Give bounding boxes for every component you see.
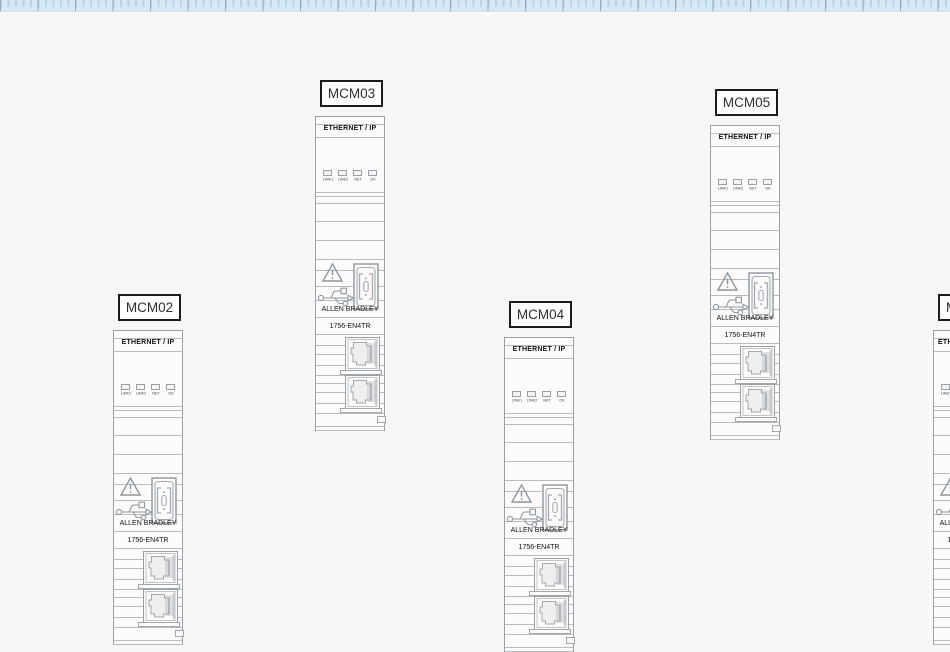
divider-line bbox=[316, 203, 384, 204]
module-tag-label[interactable]: M bbox=[938, 294, 950, 321]
led-label-link2: LINK2 bbox=[526, 399, 536, 403]
jack-base bbox=[735, 417, 777, 422]
ethernet-jack-icon bbox=[345, 375, 380, 409]
divider-line bbox=[934, 606, 950, 607]
divider-line bbox=[934, 406, 950, 407]
ethernet-jack-icon bbox=[534, 596, 569, 630]
divider-line bbox=[316, 137, 384, 138]
divider-line bbox=[316, 259, 384, 260]
divider-line bbox=[316, 426, 384, 427]
module-body: ETHERNET / IP LINK1 LINK2 NET OK bbox=[504, 337, 574, 652]
led-label-link1: LINK1 bbox=[940, 392, 950, 396]
divider-line bbox=[934, 410, 950, 411]
divider-line bbox=[711, 146, 779, 147]
divider-line bbox=[505, 538, 573, 539]
divider-line bbox=[934, 589, 950, 590]
led-label-link1: LINK1 bbox=[511, 399, 521, 403]
divider-line bbox=[505, 424, 573, 425]
led-label-net: NET bbox=[749, 187, 756, 191]
divider-line bbox=[934, 617, 950, 618]
bottom-notch bbox=[175, 630, 184, 637]
divider-line bbox=[114, 627, 182, 628]
divider-line bbox=[114, 473, 182, 474]
divider-line bbox=[711, 205, 779, 206]
divider-line bbox=[934, 351, 950, 352]
module-tag-label[interactable]: MCM02 bbox=[118, 294, 181, 321]
model-label: 1756-EN4TR bbox=[934, 533, 950, 547]
led-label-link2: LINK2 bbox=[732, 187, 742, 191]
module-body: ETHERNET / IP LINK1 LINK2 NET OK bbox=[710, 125, 780, 440]
horizontal-ruler bbox=[0, 0, 950, 12]
module-tag-text: MCM02 bbox=[126, 300, 173, 315]
divider-line bbox=[505, 555, 573, 556]
divider-line bbox=[934, 417, 950, 418]
warning-triangle-icon bbox=[940, 476, 950, 497]
divider-line bbox=[316, 192, 384, 193]
divider-line bbox=[934, 531, 950, 532]
divider-line bbox=[114, 410, 182, 411]
led-link1 bbox=[718, 179, 727, 185]
bottom-notch bbox=[772, 425, 781, 432]
model-label: 1756-EN4TR bbox=[316, 319, 384, 333]
ethernet-jack-icon bbox=[345, 337, 380, 371]
led-label-ok: OK bbox=[168, 392, 173, 396]
led-label-ok: OK bbox=[559, 399, 564, 403]
divider-line bbox=[505, 417, 573, 418]
module-body: ETHERNET / IP LINK1 LINK2 NET OK bbox=[933, 330, 950, 645]
ethernet-ip-label: ETHERNET / IP bbox=[114, 339, 182, 351]
divider-line bbox=[934, 644, 950, 645]
module-tag-text: M bbox=[946, 300, 950, 315]
divider-line bbox=[711, 326, 779, 327]
divider-line bbox=[114, 454, 182, 455]
warning-triangle-icon bbox=[120, 476, 141, 497]
ethernet-jack-icon bbox=[740, 384, 775, 418]
divider-line bbox=[505, 413, 573, 414]
jack-base bbox=[138, 622, 180, 627]
ethernet-ip-label: ETHERNET / IP bbox=[316, 125, 384, 137]
divider-line bbox=[711, 201, 779, 202]
divider-line bbox=[934, 579, 950, 580]
model-label: 1756-EN4TR bbox=[505, 540, 573, 554]
led-link2 bbox=[527, 391, 536, 397]
divider-line bbox=[711, 343, 779, 344]
divider-line bbox=[505, 480, 573, 481]
ethernet-jack-icon bbox=[143, 589, 178, 623]
module-tag-text: MCM05 bbox=[723, 95, 770, 110]
divider-line bbox=[505, 358, 573, 359]
divider-line bbox=[316, 221, 384, 222]
led-ok bbox=[763, 179, 772, 185]
module-tag-text: MCM04 bbox=[517, 307, 564, 322]
divider-line bbox=[934, 454, 950, 455]
led-ok bbox=[557, 391, 566, 397]
ethernet-jack-icon bbox=[534, 558, 569, 592]
brand-label: ALLEN BRADLEY bbox=[316, 302, 384, 317]
divider-line bbox=[114, 640, 182, 641]
divider-line bbox=[934, 559, 950, 560]
divider-line bbox=[114, 435, 182, 436]
divider-line bbox=[934, 627, 950, 628]
divider-line bbox=[316, 240, 384, 241]
divider-line bbox=[711, 268, 779, 269]
divider-line bbox=[316, 317, 384, 318]
ethernet-ip-label: ETHERNET / IP bbox=[711, 134, 779, 146]
divider-line bbox=[316, 430, 384, 431]
divider-line bbox=[505, 461, 573, 462]
ethernet-jack-icon bbox=[143, 551, 178, 585]
module-body: ETHERNET / IP LINK1 LINK2 NET OK bbox=[315, 116, 385, 431]
led-link2 bbox=[136, 384, 145, 390]
led-net bbox=[353, 170, 362, 176]
divider-line bbox=[934, 548, 950, 549]
model-label: 1756-EN4TR bbox=[114, 533, 182, 547]
led-net bbox=[748, 179, 757, 185]
divider-line bbox=[934, 473, 950, 474]
led-label-link1: LINK1 bbox=[717, 187, 727, 191]
divider-line bbox=[114, 406, 182, 407]
led-ok bbox=[166, 384, 175, 390]
ethernet-ip-label: ETHERNET / IP bbox=[934, 339, 950, 351]
model-label: 1756-EN4TR bbox=[711, 328, 779, 342]
brand-label: ALLEN BRADLEY bbox=[934, 516, 950, 531]
led-net bbox=[151, 384, 160, 390]
led-label-ok: OK bbox=[370, 178, 375, 182]
led-link2 bbox=[338, 170, 347, 176]
led-link1 bbox=[121, 384, 130, 390]
divider-line bbox=[505, 647, 573, 648]
led-link1 bbox=[941, 384, 950, 390]
led-label-ok: OK bbox=[765, 187, 770, 191]
divider-line bbox=[711, 212, 779, 213]
divider-line bbox=[114, 417, 182, 418]
divider-line bbox=[934, 597, 950, 598]
led-link2 bbox=[733, 179, 742, 185]
led-link1 bbox=[512, 391, 521, 397]
led-label-link1: LINK1 bbox=[322, 178, 332, 182]
led-label-net: NET bbox=[152, 392, 159, 396]
design-canvas[interactable]: MCM02 ETHERNET / IP bbox=[0, 12, 950, 437]
warning-triangle-icon bbox=[717, 271, 738, 292]
led-label-link1: LINK1 bbox=[120, 392, 130, 396]
divider-line bbox=[316, 413, 384, 414]
divider-line bbox=[711, 422, 779, 423]
module-tag-label[interactable]: MCM05 bbox=[715, 89, 778, 116]
module-tag-label[interactable]: MCM04 bbox=[509, 301, 572, 328]
divider-line bbox=[316, 196, 384, 197]
brand-label: ALLEN BRADLEY bbox=[505, 523, 573, 538]
divider-line bbox=[316, 334, 384, 335]
brand-label: ALLEN BRADLEY bbox=[114, 516, 182, 531]
divider-line bbox=[711, 230, 779, 231]
warning-triangle-icon bbox=[511, 483, 532, 504]
module-body: ETHERNET / IP LINK1 LINK2 NET OK bbox=[113, 330, 183, 645]
bottom-notch bbox=[377, 416, 386, 423]
led-net bbox=[542, 391, 551, 397]
divider-line bbox=[505, 442, 573, 443]
divider-line bbox=[711, 435, 779, 436]
warning-triangle-icon bbox=[322, 262, 343, 283]
ethernet-jack-icon bbox=[740, 346, 775, 380]
led-link1 bbox=[323, 170, 332, 176]
led-label-net: NET bbox=[543, 399, 550, 403]
divider-line bbox=[934, 640, 950, 641]
divider-line bbox=[934, 435, 950, 436]
divider-line bbox=[114, 548, 182, 549]
divider-line bbox=[114, 531, 182, 532]
led-label-link2: LINK2 bbox=[135, 392, 145, 396]
divider-line bbox=[114, 644, 182, 645]
divider-line bbox=[114, 351, 182, 352]
led-label-net: NET bbox=[354, 178, 361, 182]
ethernet-ip-label: ETHERNET / IP bbox=[505, 346, 573, 358]
jack-base bbox=[340, 408, 382, 413]
bottom-notch bbox=[566, 637, 575, 644]
divider-line bbox=[711, 249, 779, 250]
led-ok bbox=[368, 170, 377, 176]
brand-label: ALLEN BRADLEY bbox=[711, 311, 779, 326]
divider-line bbox=[934, 568, 950, 569]
divider-line bbox=[711, 439, 779, 440]
led-label-link2: LINK2 bbox=[337, 178, 347, 182]
jack-base bbox=[529, 629, 571, 634]
module-tag-text: MCM03 bbox=[328, 86, 375, 101]
module-tag-label[interactable]: MCM03 bbox=[320, 80, 383, 107]
divider-line bbox=[505, 634, 573, 635]
